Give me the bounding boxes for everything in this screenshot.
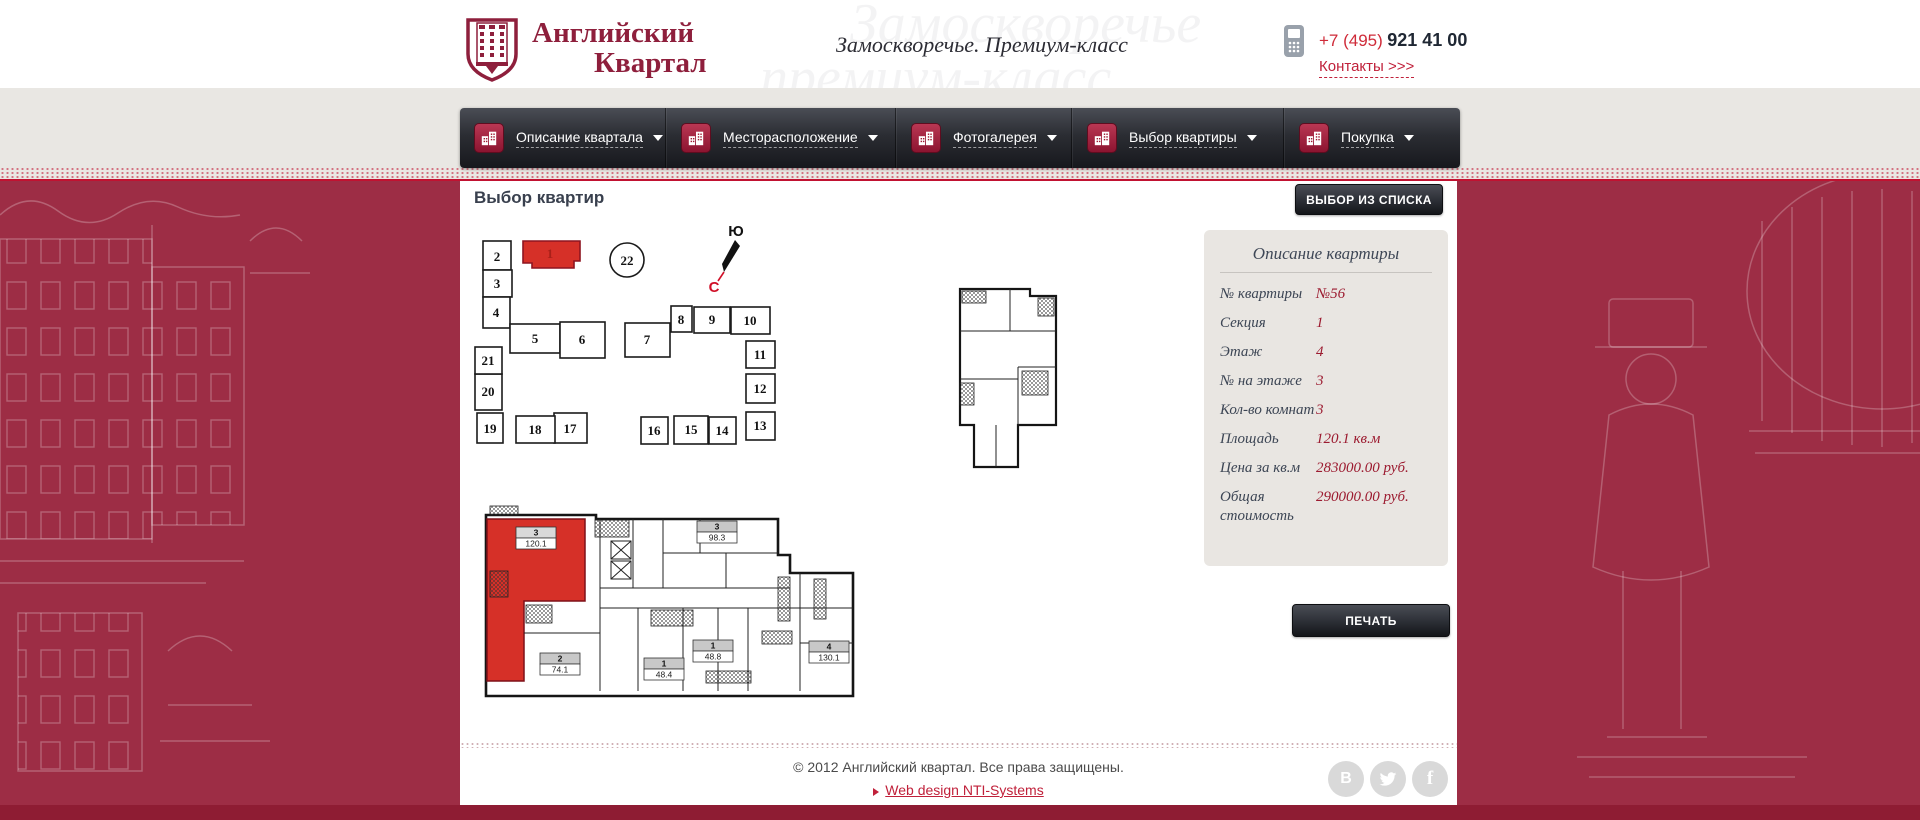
panel-title: Описание квартиры: [1220, 244, 1432, 273]
detail-label: Площадь: [1220, 430, 1316, 449]
svg-text:6: 6: [579, 332, 586, 347]
detail-row: № квартиры №56: [1220, 285, 1432, 304]
detail-label: Кол-во комнат: [1220, 401, 1316, 420]
svg-text:17: 17: [564, 421, 578, 436]
logo-line-2: Квартал: [594, 48, 707, 78]
purchase-icon: [1299, 123, 1329, 153]
svg-text:19: 19: [484, 421, 498, 436]
detail-value: 4: [1316, 343, 1324, 362]
svg-text:3: 3: [715, 522, 720, 532]
apartment-details-panel: Описание квартиры № квартиры №56 Секция …: [1204, 230, 1448, 566]
detail-row: Этаж 4: [1220, 343, 1432, 362]
nav-label: Описание квартала: [516, 129, 643, 148]
contacts-link[interactable]: Контакты >>>: [1319, 58, 1414, 78]
nav-item-photo-gallery[interactable]: Фотогалерея: [896, 108, 1072, 168]
footer: © 2012 Английский квартал. Все права защ…: [460, 759, 1457, 798]
detail-label: Цена за кв.м: [1220, 459, 1316, 478]
svg-text:1: 1: [711, 641, 716, 651]
svg-text:11: 11: [754, 347, 766, 362]
svg-text:14: 14: [716, 423, 730, 438]
svg-text:48.8: 48.8: [705, 652, 722, 662]
social-links: В f: [1328, 761, 1448, 797]
compass-south-label: Ю: [728, 223, 743, 240]
svg-text:13: 13: [754, 418, 768, 433]
left-band-building-sketch: [0, 181, 460, 805]
svg-text:9: 9: [709, 312, 716, 327]
print-button[interactable]: ПЕЧАТЬ: [1292, 604, 1450, 637]
phone-number-digits: 921 41 00: [1387, 30, 1467, 50]
svg-text:22: 22: [621, 253, 634, 268]
apartment-label[interactable]: 2 74.1: [540, 653, 580, 675]
svg-text:2: 2: [558, 654, 563, 664]
svg-text:8: 8: [678, 312, 685, 327]
compass-north-label: С: [709, 279, 720, 296]
svg-text:10: 10: [744, 313, 757, 328]
detail-row: Площадь 120.1 кв.м: [1220, 430, 1432, 449]
detail-value: 1: [1316, 314, 1324, 333]
detail-label: Этаж: [1220, 343, 1316, 362]
detail-value: 3: [1316, 401, 1324, 420]
svg-text:1: 1: [662, 659, 667, 669]
copyright-text: © 2012 Английский квартал. Все права защ…: [460, 759, 1457, 775]
svg-text:74.1: 74.1: [552, 665, 569, 675]
right-decorative-band: [1457, 181, 1920, 805]
site-tagline: Замоскворечье. Премиум-класс: [836, 32, 1128, 58]
detail-value: 120.1 кв.м: [1316, 430, 1380, 449]
svg-text:5: 5: [532, 331, 539, 346]
apartment-label[interactable]: 1 48.4: [644, 658, 684, 680]
left-decorative-band: [0, 181, 460, 805]
svg-text:4: 4: [493, 305, 500, 320]
nav-label: Покупка: [1341, 129, 1394, 148]
detail-label: Общая стоимость: [1220, 488, 1316, 526]
detail-row: Цена за кв.м 283000.00 руб.: [1220, 459, 1432, 478]
detail-value: 290000.00 руб.: [1316, 488, 1409, 507]
detail-row: Общая стоимость 290000.00 руб.: [1220, 488, 1432, 526]
mobile-phone-icon: [1283, 24, 1305, 58]
site-plan: 1 2 3 4 5 6 7 8 9 10 11 12 13 14 15 16 1…: [470, 220, 780, 460]
svg-text:20: 20: [482, 384, 495, 399]
svg-text:48.4: 48.4: [656, 670, 673, 680]
red-dotted-strip: [0, 167, 1920, 179]
logo-shield-icon: [466, 18, 518, 82]
vkontakte-icon[interactable]: В: [1328, 761, 1364, 797]
apartment-label[interactable]: 4 130.1: [809, 641, 849, 663]
detail-value: 283000.00 руб.: [1316, 459, 1409, 478]
chevron-down-icon: [1247, 135, 1257, 141]
nav-item-apartment-selection[interactable]: Выбор квартиры: [1072, 108, 1284, 168]
detail-row: Секция 1: [1220, 314, 1432, 333]
twitter-icon[interactable]: [1370, 761, 1406, 797]
apartment-selection-icon: [1087, 123, 1117, 153]
nav-label: Выбор квартиры: [1129, 129, 1237, 148]
photo-gallery-icon: [911, 123, 941, 153]
detail-row: Кол-во комнат 3: [1220, 401, 1432, 420]
footer-divider: [460, 742, 1457, 748]
logo[interactable]: Английский Квартал: [466, 18, 707, 82]
svg-text:1: 1: [547, 246, 554, 261]
detail-label: Секция: [1220, 314, 1316, 333]
nav-item-location[interactable]: Месторасположение: [666, 108, 896, 168]
chevron-down-icon: [1404, 135, 1414, 141]
phone-area-code: +7 (495): [1319, 31, 1383, 50]
compass: Ю С: [709, 223, 744, 296]
main-navigation: Описание квартала Месторасположение Фото…: [460, 108, 1460, 168]
nav-label: Фотогалерея: [953, 129, 1037, 148]
apartment-label-highlighted[interactable]: 3 120.1: [516, 527, 556, 549]
page-title: Выбор квартир: [474, 188, 604, 208]
svg-text:130.1: 130.1: [818, 653, 840, 663]
nav-label: Месторасположение: [723, 129, 858, 148]
design-credit-link[interactable]: Web design NTI-Systems: [873, 782, 1043, 798]
detail-label: № квартиры: [1220, 285, 1316, 304]
apartment-label[interactable]: 3 98.3: [697, 521, 737, 543]
main-content: Выбор квартир ВЫБОР ИЗ СПИСКА: [460, 181, 1457, 805]
nav-item-purchase[interactable]: Покупка: [1284, 108, 1460, 168]
header: Замоскворечье премиум-класс Английский: [0, 0, 1920, 88]
svg-text:15: 15: [685, 422, 699, 437]
svg-text:4: 4: [827, 642, 832, 652]
phone-number: +7 (495) 921 41 00: [1319, 30, 1467, 51]
svg-text:16: 16: [648, 423, 662, 438]
svg-text:12: 12: [754, 381, 767, 396]
detail-value: №56: [1316, 285, 1345, 304]
svg-text:21: 21: [482, 353, 495, 368]
svg-text:120.1: 120.1: [525, 539, 547, 549]
compass-needle: [722, 240, 740, 272]
selected-apartment-plan: [948, 283, 1096, 473]
apartment-label[interactable]: 1 48.8: [693, 640, 733, 662]
district-description-icon: [474, 123, 504, 153]
svg-text:98.3: 98.3: [709, 533, 726, 543]
chevron-down-icon: [868, 135, 878, 141]
svg-text:2: 2: [494, 249, 501, 264]
detail-label: № на этаже: [1220, 372, 1316, 391]
chevron-down-icon: [653, 135, 663, 141]
svg-text:3: 3: [494, 276, 501, 291]
svg-text:18: 18: [529, 422, 543, 437]
chevron-down-icon: [1047, 135, 1057, 141]
nav-item-district-description[interactable]: Описание квартала: [460, 108, 666, 168]
select-from-list-button[interactable]: ВЫБОР ИЗ СПИСКА: [1295, 184, 1443, 215]
logo-line-1: Английский: [532, 18, 707, 48]
page: Замоскворечье премиум-класс Английский: [0, 0, 1920, 820]
detail-value: 3: [1316, 372, 1324, 391]
right-band-figure-sketch: [1457, 181, 1920, 805]
logo-text: Английский Квартал: [532, 18, 707, 82]
svg-text:7: 7: [644, 332, 651, 347]
bottom-red-bar: [0, 805, 1920, 820]
floor-plan: 3 120.1 3 98.3 2 74.1: [478, 493, 858, 706]
svg-text:3: 3: [534, 528, 539, 538]
location-icon: [681, 123, 711, 153]
facebook-icon[interactable]: f: [1412, 761, 1448, 797]
detail-row: № на этаже 3: [1220, 372, 1432, 391]
